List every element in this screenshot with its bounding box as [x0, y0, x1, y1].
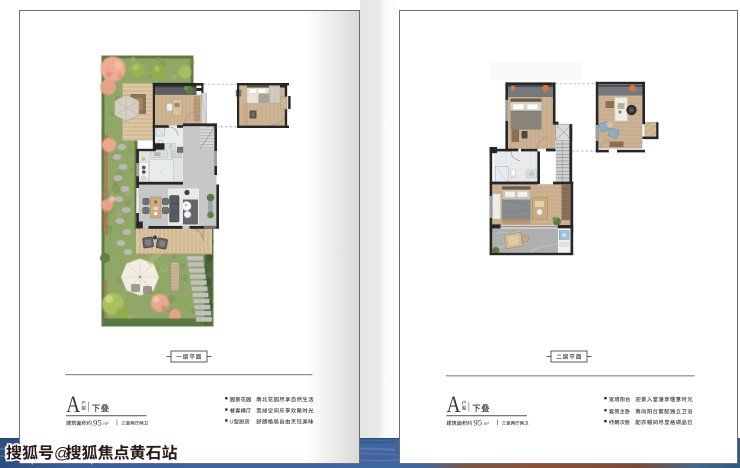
svg-text:U: U — [230, 420, 234, 426]
svg-text:95: 95 — [473, 417, 482, 427]
svg-text:A: A — [66, 391, 80, 417]
svg-text:m²: m² — [103, 421, 109, 426]
svg-text:95: 95 — [93, 417, 102, 427]
svg-text:A: A — [447, 391, 461, 417]
svg-text:m²: m² — [484, 421, 490, 426]
